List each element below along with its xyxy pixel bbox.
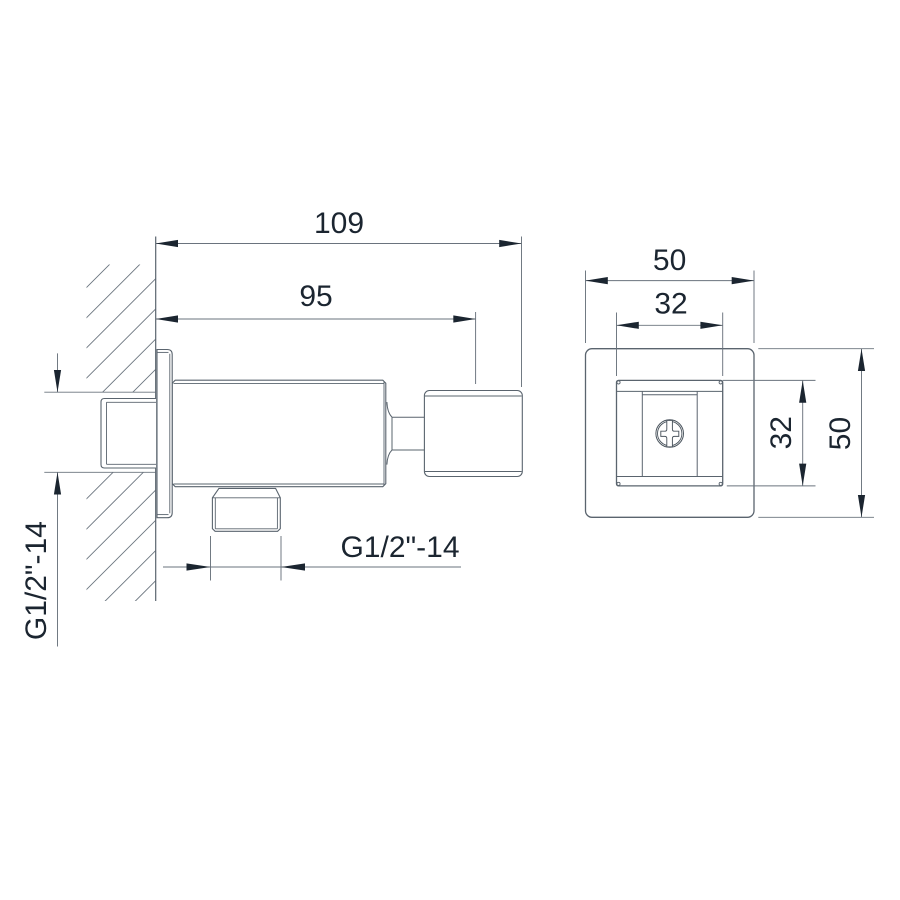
- svg-text:95: 95: [299, 280, 332, 313]
- svg-text:109: 109: [314, 207, 364, 240]
- svg-text:32: 32: [765, 416, 798, 449]
- svg-text:50: 50: [653, 244, 686, 277]
- svg-text:50: 50: [824, 417, 857, 450]
- svg-text:G1/2"-14: G1/2"-14: [340, 531, 459, 564]
- svg-text:32: 32: [654, 288, 687, 321]
- svg-text:G1/2"-14: G1/2"-14: [20, 521, 53, 640]
